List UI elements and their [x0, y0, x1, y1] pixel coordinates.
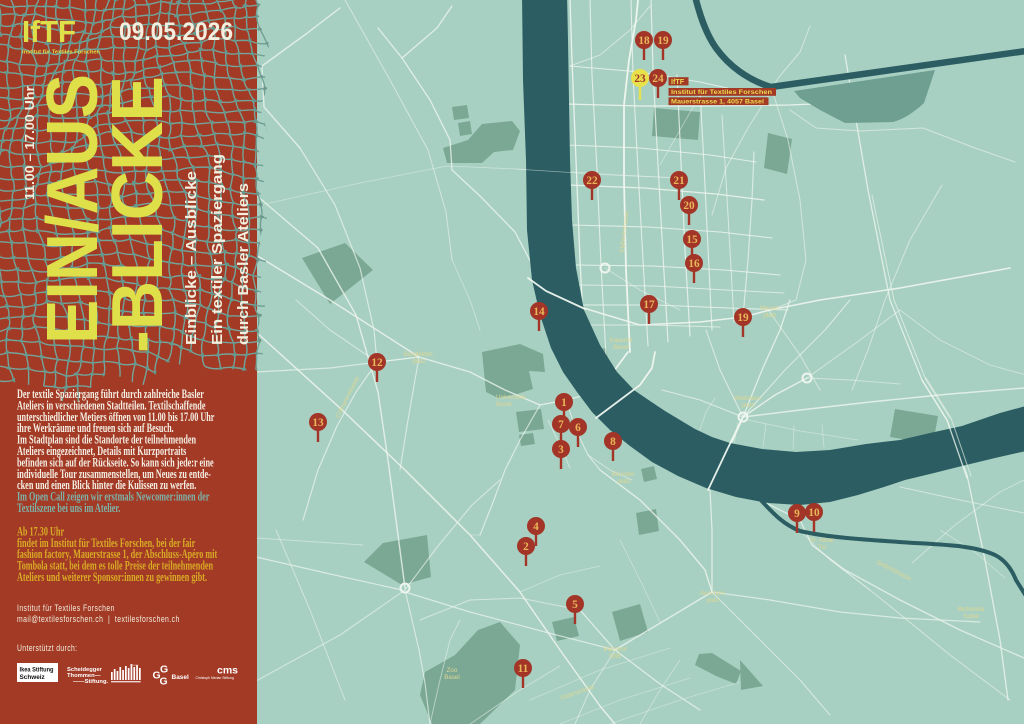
svg-text:IfTF: IfTF: [671, 77, 685, 86]
svg-text:11: 11: [518, 663, 529, 675]
svg-text:4: 4: [533, 521, 539, 533]
svg-text:Ein textiler Spaziergang: Ein textiler Spaziergang: [209, 154, 226, 345]
svg-text:6: 6: [575, 422, 581, 434]
svg-text:13: 13: [312, 417, 324, 429]
svg-text:Burgfelder-: Burgfelder-: [404, 351, 435, 358]
svg-text:Basel: Basel: [613, 344, 628, 351]
svg-text:Bethesda: Bethesda: [958, 606, 985, 613]
svg-text:platz: platz: [741, 402, 754, 409]
svg-text:Ateliers und weiterer Sponsor:: Ateliers und weiterer Sponsor:innen zu g…: [17, 570, 207, 584]
svg-text:Ikea Stiftung: Ikea Stiftung: [20, 667, 54, 674]
svg-text:21: 21: [673, 175, 685, 187]
svg-text:mail@textilesforschen.ch | t: mail@textilesforschen.ch | textilesforsc…: [17, 614, 180, 624]
svg-text:Institut für Textiles Forschen: Institut für Textiles Forschen: [22, 50, 100, 56]
svg-text:2: 2: [523, 541, 529, 553]
svg-text:24: 24: [652, 73, 664, 85]
svg-text:Christoph Merian Stiftung: Christoph Merian Stiftung: [196, 676, 234, 680]
svg-text:durch Basler Ateliers: durch Basler Ateliers: [235, 183, 252, 345]
svg-text:15: 15: [686, 234, 698, 246]
svg-text:Basel: Basel: [496, 401, 511, 408]
svg-text:22: 22: [586, 175, 598, 187]
svg-text:16: 16: [688, 258, 700, 270]
svg-text:G: G: [160, 664, 168, 676]
svg-text:Textilszene bei uns im Atelier: Textilszene bei uns im Atelier.: [17, 501, 121, 515]
svg-text:St. Alban: St. Alban: [810, 537, 835, 544]
svg-text:23: 23: [634, 73, 646, 85]
svg-text:——Stiftung.: ——Stiftung.: [73, 679, 108, 685]
svg-text:9: 9: [794, 508, 800, 520]
svg-text:Tor: Tor: [818, 544, 827, 551]
svg-text:Spital: Spital: [963, 613, 978, 620]
svg-text:Basel: Basel: [172, 674, 190, 681]
svg-text:Unterstützt durch:: Unterstützt durch:: [17, 643, 77, 653]
svg-text:7: 7: [558, 419, 564, 431]
svg-text:Kaserne: Kaserne: [609, 337, 633, 344]
svg-text:Aeschen-: Aeschen-: [700, 590, 726, 597]
svg-text:Messe-: Messe-: [760, 305, 780, 312]
svg-text:14: 14: [533, 306, 545, 318]
svg-text:IfTF: IfTF: [22, 14, 76, 49]
svg-text:platz: platz: [412, 358, 425, 365]
svg-text:Wettstein-: Wettstein-: [734, 395, 762, 402]
svg-text:Institut für Textiles Forschen: Institut für Textiles Forschen: [671, 89, 772, 96]
svg-text:3: 3: [558, 444, 564, 456]
svg-text:Institut für Textiles Forschen: Institut für Textiles Forschen: [17, 603, 115, 613]
svg-text:09.05.2026: 09.05.2026: [119, 18, 233, 46]
svg-text:18: 18: [638, 35, 650, 47]
svg-text:platz: platz: [706, 597, 719, 604]
svg-text:1: 1: [561, 397, 567, 409]
svg-text:17: 17: [643, 299, 655, 311]
svg-text:Universität: Universität: [496, 394, 526, 401]
svg-text:Mauerstrasse 1, 4057 Basel: Mauerstrasse 1, 4057 Basel: [671, 98, 764, 105]
svg-text:Münster-: Münster-: [612, 471, 636, 478]
svg-text:Zoo: Zoo: [447, 667, 458, 674]
svg-text:cms: cms: [217, 665, 238, 677]
svg-text:19: 19: [657, 35, 669, 47]
svg-text:19: 19: [737, 312, 749, 324]
svg-text:G: G: [160, 676, 168, 688]
svg-text:Basel: Basel: [130, 663, 138, 667]
svg-text:Basel: Basel: [444, 674, 459, 681]
svg-text:-BLICKE: -BLICKE: [98, 76, 178, 353]
svg-text:10: 10: [808, 507, 820, 519]
svg-text:5: 5: [572, 599, 578, 611]
svg-text:Bahnhof: Bahnhof: [603, 646, 626, 653]
svg-text:20: 20: [683, 200, 695, 212]
svg-text:8: 8: [610, 436, 616, 448]
svg-text:Einblicke – Ausblicke: Einblicke – Ausblicke: [183, 171, 200, 345]
svg-text:SBB: SBB: [609, 653, 621, 660]
svg-text:12: 12: [371, 357, 383, 369]
svg-text:Schweiz: Schweiz: [20, 674, 45, 681]
svg-text:platz: platz: [617, 478, 630, 485]
svg-text:platz: platz: [763, 312, 776, 319]
